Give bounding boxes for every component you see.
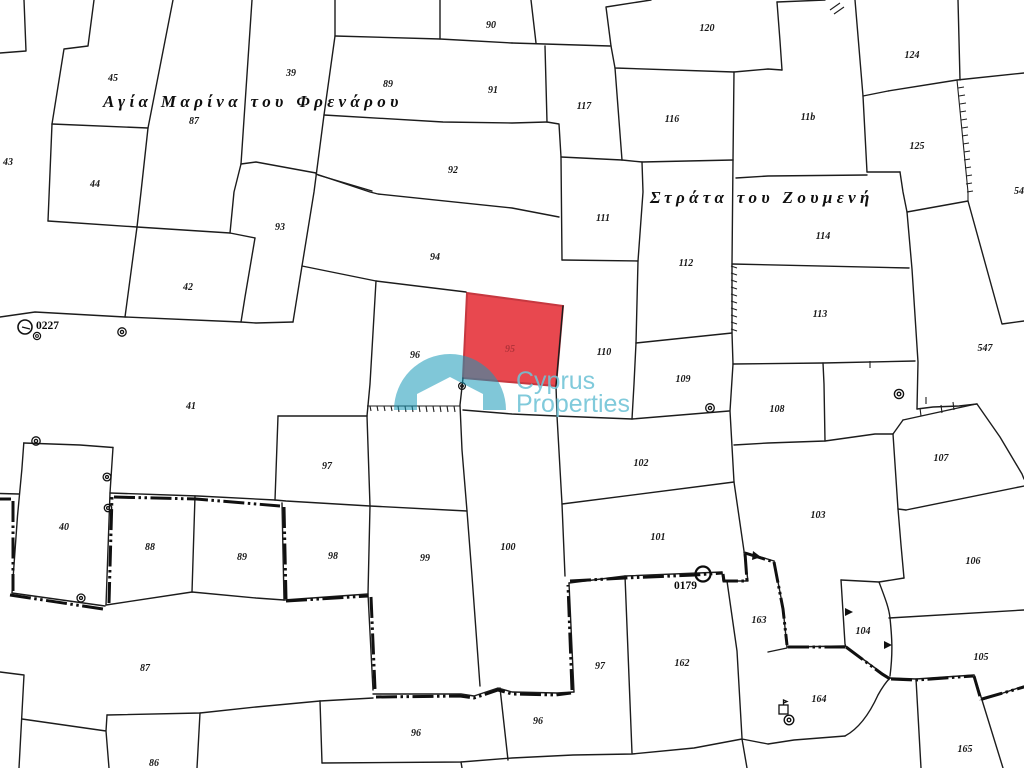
- svg-text:162: 162: [675, 658, 690, 669]
- svg-text:Αγία Μαρίνα του Φρενάρου: Αγία Μαρίνα του Φρενάρου: [102, 92, 403, 111]
- svg-text:99: 99: [420, 553, 430, 564]
- svg-text:111: 111: [596, 213, 610, 224]
- svg-text:40: 40: [58, 522, 69, 533]
- svg-text:117: 117: [577, 101, 592, 112]
- svg-text:114: 114: [816, 231, 830, 242]
- svg-text:45: 45: [107, 73, 118, 84]
- svg-text:97: 97: [595, 661, 606, 672]
- svg-text:86: 86: [149, 758, 159, 768]
- svg-text:88: 88: [145, 542, 155, 553]
- svg-text:164: 164: [812, 694, 827, 705]
- svg-text:93: 93: [275, 222, 285, 233]
- svg-text:0179: 0179: [674, 580, 697, 592]
- svg-text:113: 113: [813, 309, 827, 320]
- svg-text:124: 124: [905, 50, 920, 61]
- svg-text:41: 41: [185, 401, 196, 412]
- svg-text:87: 87: [189, 116, 200, 127]
- svg-text:39: 39: [285, 68, 296, 79]
- svg-text:120: 120: [700, 23, 715, 34]
- svg-text:89: 89: [383, 79, 393, 90]
- svg-text:125: 125: [910, 141, 925, 152]
- svg-text:98: 98: [328, 551, 338, 562]
- svg-text:109: 109: [676, 374, 691, 385]
- svg-text:96: 96: [410, 350, 420, 361]
- svg-text:100: 100: [501, 542, 516, 553]
- svg-text:44: 44: [89, 179, 100, 190]
- svg-text:96: 96: [411, 728, 421, 739]
- svg-text:95: 95: [505, 344, 515, 355]
- svg-text:116: 116: [665, 114, 679, 125]
- svg-text:Στράτα του Ζουμενή: Στράτα του Ζουμενή: [649, 188, 874, 207]
- svg-text:108: 108: [770, 404, 785, 415]
- svg-text:91: 91: [488, 85, 498, 96]
- svg-text:107: 107: [934, 453, 950, 464]
- svg-text:Properties: Properties: [516, 390, 630, 418]
- svg-text:96: 96: [533, 716, 543, 727]
- svg-text:105: 105: [974, 652, 989, 663]
- svg-text:42: 42: [182, 282, 193, 293]
- svg-text:94: 94: [430, 252, 440, 263]
- svg-text:43: 43: [2, 157, 13, 168]
- svg-text:97: 97: [322, 461, 333, 472]
- svg-text:92: 92: [448, 165, 458, 176]
- svg-text:165: 165: [958, 744, 973, 755]
- svg-text:89: 89: [237, 552, 247, 563]
- svg-text:11b: 11b: [801, 112, 815, 123]
- svg-text:104: 104: [856, 626, 871, 637]
- svg-text:0227: 0227: [36, 320, 59, 332]
- svg-text:112: 112: [679, 258, 693, 269]
- svg-text:106: 106: [966, 556, 981, 567]
- svg-text:163: 163: [752, 615, 767, 626]
- svg-text:547: 547: [978, 343, 994, 354]
- svg-text:54: 54: [1014, 186, 1024, 197]
- svg-text:102: 102: [634, 458, 649, 469]
- svg-text:87: 87: [140, 663, 151, 674]
- svg-text:103: 103: [811, 510, 826, 521]
- svg-text:90: 90: [486, 20, 496, 31]
- svg-text:110: 110: [597, 347, 611, 358]
- svg-text:101: 101: [651, 532, 666, 543]
